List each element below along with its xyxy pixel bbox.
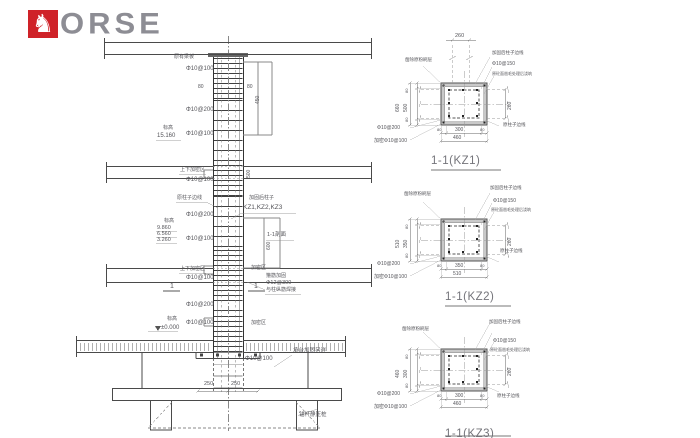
section-linework-kz2 bbox=[408, 193, 511, 306]
elevation-linework bbox=[76, 36, 372, 431]
section-linework-kz1 bbox=[408, 39, 509, 171]
drawing-linework bbox=[0, 0, 700, 438]
cad-drawing-screenshot: ♞ ORSE bbox=[0, 0, 700, 438]
section-linework-kz3 bbox=[408, 323, 511, 436]
